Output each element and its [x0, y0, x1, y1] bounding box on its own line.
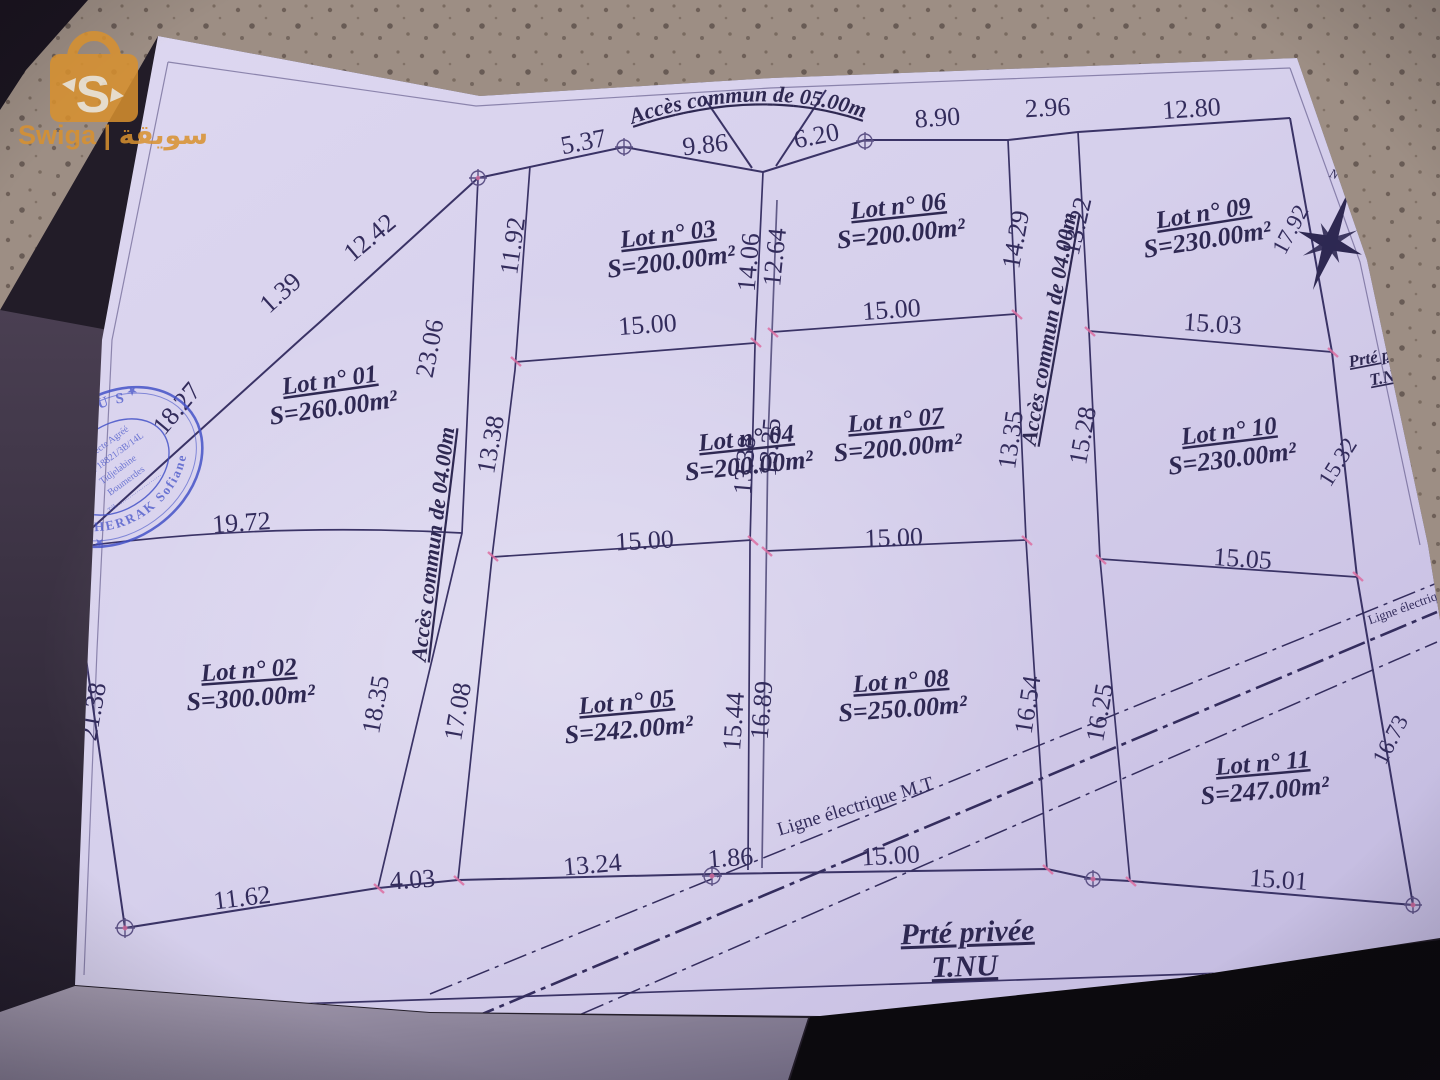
photo-of-survey-plan: 5.37 9.86 6.20 8.90 2.96 12.80 1.39 12.4…: [0, 0, 1440, 1080]
watermark-logo-letter: S: [76, 66, 111, 124]
survey-plan-svg: 5.37 9.86 6.20 8.90 2.96 12.80 1.39 12.4…: [0, 0, 1440, 1080]
photo-vignette: [0, 0, 1440, 1080]
watermark-brand-text: Swiga | سويقة: [18, 120, 208, 151]
